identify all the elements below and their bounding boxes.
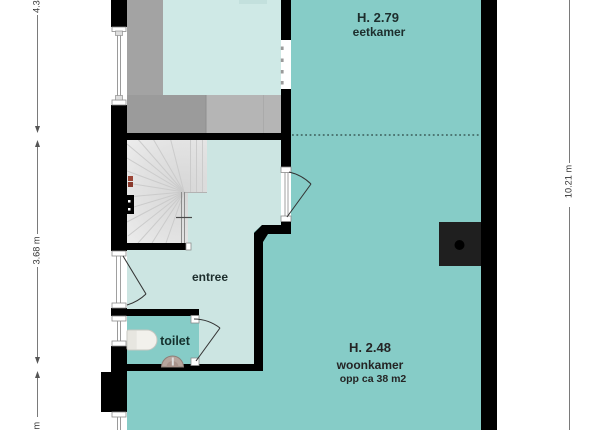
svg-text:3.11 m: 3.11 m xyxy=(32,421,42,430)
svg-text:3.68 m: 3.68 m xyxy=(32,236,42,264)
svg-text:woonkamer: woonkamer xyxy=(336,358,404,372)
svg-text:toilet: toilet xyxy=(160,334,191,348)
svg-text:entree: entree xyxy=(192,270,228,284)
svg-text:4.32 m: 4.32 m xyxy=(32,0,42,13)
svg-text:10.21 m: 10.21 m xyxy=(564,165,574,199)
svg-text:H. 2.48: H. 2.48 xyxy=(349,340,391,355)
svg-text:H. 2.79: H. 2.79 xyxy=(357,10,399,25)
svg-text:eetkamer: eetkamer xyxy=(353,25,406,39)
svg-text:opp ca 38 m2: opp ca 38 m2 xyxy=(340,373,407,385)
